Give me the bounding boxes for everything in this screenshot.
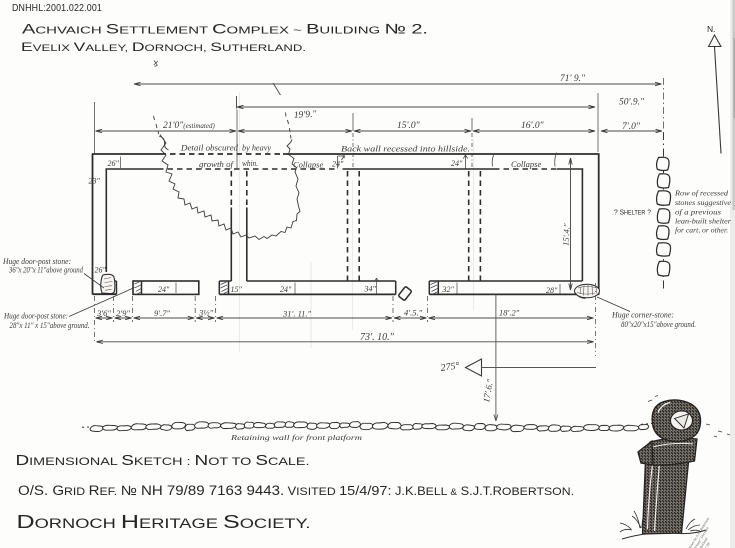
svg-text:EVELIX VALLEY, DORNOCH, SUTHER: EVELIX VALLEY, DORNOCH, SUTHERLAND.	[21, 40, 306, 54]
svg-text:15'.4.": 15'.4."	[561, 223, 572, 246]
svg-text:15'.0": 15'.0"	[397, 121, 421, 131]
svg-text:23": 23"	[89, 177, 101, 186]
svg-text:28"x 11" x 15"above ground.: 28"x 11" x 15"above ground.	[10, 320, 90, 330]
svg-text:26": 26"	[108, 159, 120, 168]
svg-text:stones suggestive: stones suggestive	[675, 199, 731, 207]
svg-text:Huge corner-stone:: Huge corner-stone:	[611, 310, 674, 320]
svg-text:Back wall recessed into hillsi: Back wall recessed into hillside.	[341, 145, 470, 154]
svg-text:18'.2": 18'.2"	[499, 308, 520, 318]
svg-text:Collapse: Collapse	[293, 160, 323, 170]
svg-text:lean-built shelter: lean-built shelter	[675, 218, 731, 226]
svg-text:whin.: whin.	[242, 158, 258, 168]
svg-text:3'6": 3'6"	[96, 308, 111, 318]
svg-text:24": 24"	[280, 285, 292, 294]
svg-text:73'. 10.": 73'. 10."	[360, 332, 395, 343]
svg-text:Huge door-post stone:: Huge door-post stone:	[3, 311, 68, 321]
svg-text:Retaining wall for front p: Retaining wall for front platform	[230, 434, 362, 442]
svg-text:of a previous: of a previous	[675, 209, 721, 217]
svg-text:34": 34"	[364, 285, 377, 294]
svg-text:DIMENSIONAL SKETCH : NOT TO S: DIMENSIONAL SKETCH : NOT TO SCALE.	[16, 453, 310, 469]
svg-text:for cart, or other.: for cart, or other.	[675, 227, 728, 235]
svg-text:DNHHL:2001.022.001: DNHHL:2001.022.001	[12, 3, 102, 14]
svg-text:26": 26"	[95, 266, 107, 275]
svg-text:24": 24"	[451, 159, 463, 168]
svg-text:16'.0": 16'.0"	[521, 121, 545, 131]
svg-text:Collapse: Collapse	[511, 159, 541, 169]
svg-text:71' 9.": 71' 9."	[560, 74, 586, 84]
svg-text:21'0"(estimated): 21'0"(estimated)	[163, 121, 215, 131]
svg-text:growth of: growth of	[199, 159, 235, 169]
svg-text:31'. 11.": 31'. 11."	[282, 309, 312, 319]
svg-text:15": 15"	[231, 285, 243, 294]
svg-text:28": 28"	[546, 286, 558, 295]
svg-text:80"x20"x15"above ground.: 80"x20"x15"above ground.	[621, 319, 696, 329]
svg-text:24": 24"	[332, 160, 344, 169]
svg-text:Row of recessed: Row of recessed	[674, 190, 729, 198]
svg-text:? SHELTER ?: ? SHELTER ?	[614, 208, 651, 217]
svg-text:24": 24"	[158, 285, 170, 294]
svg-text:50'.9.": 50'.9."	[619, 98, 645, 108]
svg-text:36"x 20"x 11"above ground: 36"x 20"x 11"above ground	[8, 265, 83, 275]
svg-text:7'.0": 7'.0"	[622, 122, 641, 132]
svg-text:4'.5.": 4'.5."	[404, 308, 423, 318]
svg-text:Detail obscured: Detail obscured	[180, 143, 239, 153]
svg-text:32": 32"	[442, 285, 455, 294]
svg-text:by heavy: by heavy	[242, 143, 271, 153]
svg-text:19'9.": 19'9."	[294, 109, 318, 121]
svg-text:9'.7": 9'.7"	[154, 308, 170, 318]
svg-text:3½": 3½"	[198, 308, 214, 318]
svg-text:N.: N.	[707, 24, 716, 34]
svg-text:2'9": 2'9"	[116, 308, 130, 318]
svg-text:O/S. GRID REF. № NH 79/89 7163: O/S. GRID REF. № NH 79/89 7163 9443. VIS…	[18, 483, 574, 498]
